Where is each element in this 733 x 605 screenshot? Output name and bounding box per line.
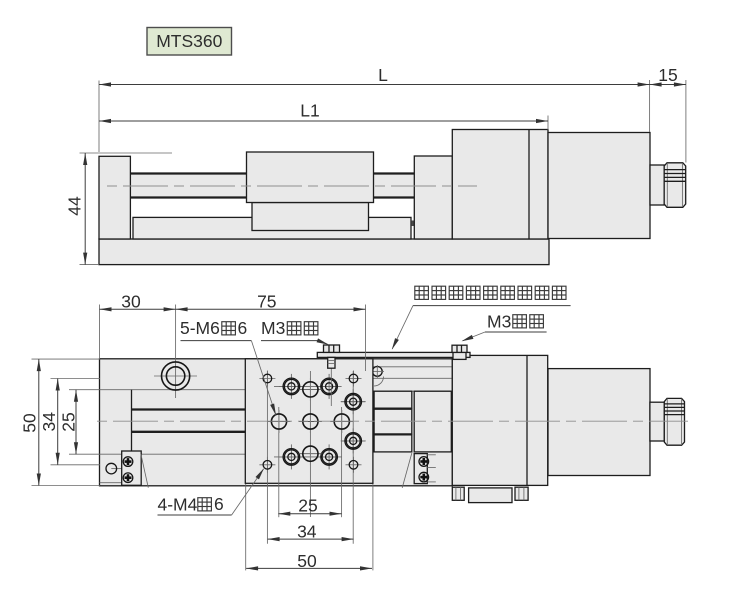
svg-text:25: 25 bbox=[59, 412, 79, 431]
svg-text:6: 6 bbox=[214, 494, 224, 514]
svg-text:75: 75 bbox=[257, 291, 276, 311]
svg-text:50: 50 bbox=[297, 551, 317, 571]
svg-text:34: 34 bbox=[297, 522, 317, 542]
svg-text:L1: L1 bbox=[300, 101, 319, 121]
svg-text:L: L bbox=[378, 65, 388, 85]
svg-text:30: 30 bbox=[121, 291, 141, 311]
svg-text:34: 34 bbox=[39, 412, 59, 432]
svg-text:50: 50 bbox=[20, 413, 40, 433]
svg-text:M3: M3 bbox=[261, 318, 285, 338]
svg-text:MTS360: MTS360 bbox=[156, 31, 222, 51]
svg-text:M3: M3 bbox=[487, 312, 511, 332]
svg-text:15: 15 bbox=[658, 65, 677, 85]
svg-text:4-M4: 4-M4 bbox=[158, 495, 198, 515]
svg-text:44: 44 bbox=[65, 196, 85, 216]
svg-text:5-M6: 5-M6 bbox=[180, 318, 220, 338]
svg-text:25: 25 bbox=[298, 496, 317, 516]
svg-text:6: 6 bbox=[238, 318, 248, 338]
